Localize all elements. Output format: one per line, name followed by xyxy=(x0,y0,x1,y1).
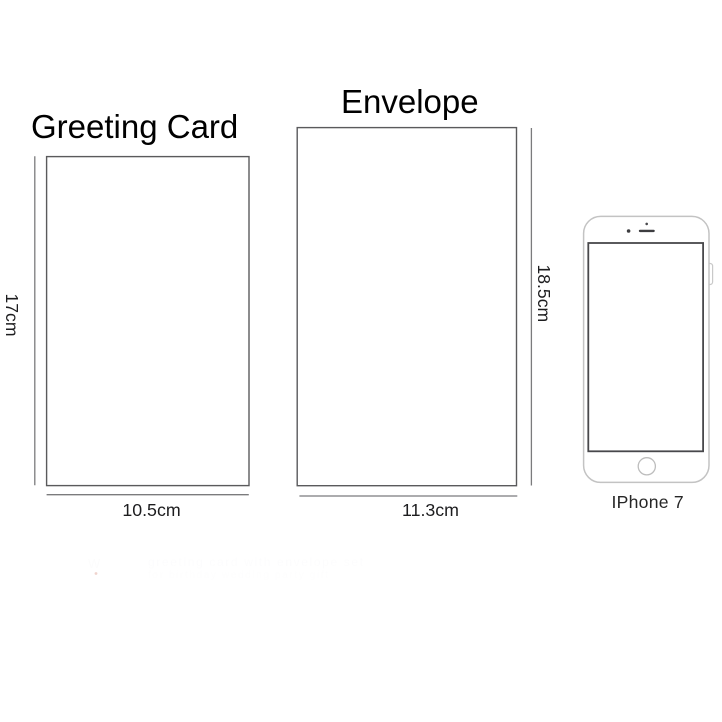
svg-text:18.5cm: 18.5cm xyxy=(534,264,554,322)
svg-text:10.5cm: 10.5cm xyxy=(122,500,180,520)
svg-text:Envelope: Envelope xyxy=(341,83,479,120)
svg-text:Greeting Card: Greeting Card xyxy=(31,108,238,145)
svg-text:IPhone 7: IPhone 7 xyxy=(612,492,684,512)
svg-text:greeting card with envelope se: greeting card with envelope set xyxy=(148,555,364,569)
svg-text:17cm: 17cm xyxy=(2,293,22,336)
svg-text:W: W xyxy=(88,556,101,571)
svg-text:11.3cm: 11.3cm xyxy=(402,500,459,520)
